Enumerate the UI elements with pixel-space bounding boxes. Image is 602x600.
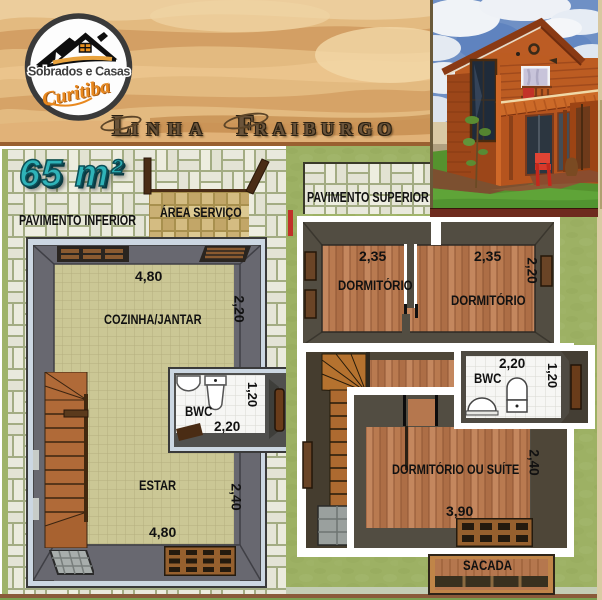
svg-text:Sobrados e Casas: Sobrados e Casas bbox=[28, 65, 130, 79]
